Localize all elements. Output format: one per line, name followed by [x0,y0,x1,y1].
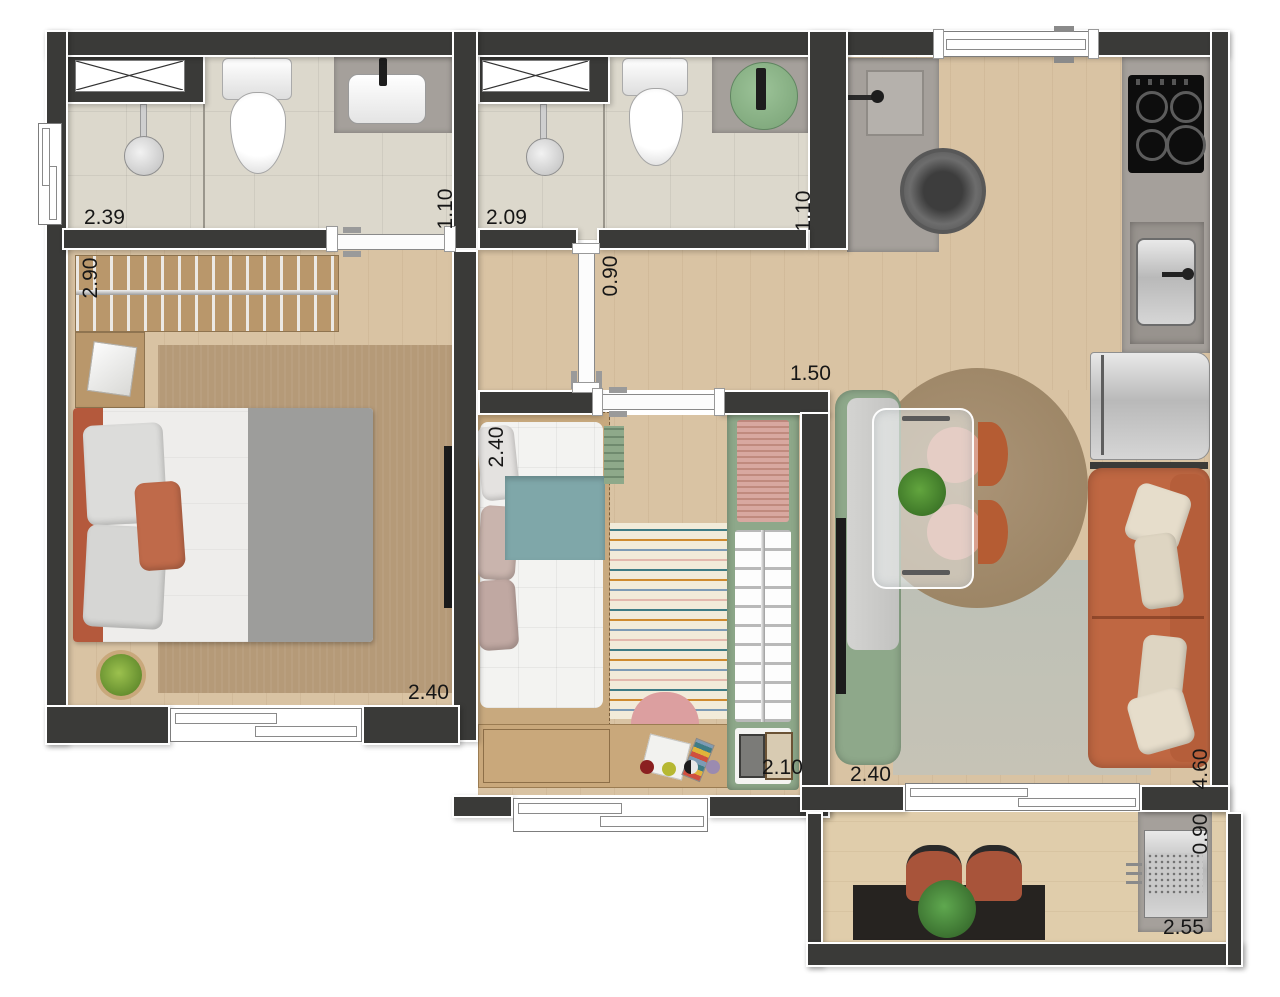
dim-bathroom2-depth: 1.10 [792,182,816,240]
gas-cooktop [1128,75,1204,173]
dim-balcony-depth: 0.90 [1189,805,1213,863]
wardrobe-rail [735,530,791,722]
slider-pane [910,788,1028,797]
bed2-headboard-organizer [604,426,624,484]
shower-head-2 [526,138,564,176]
table-support [902,570,950,575]
window-pane [49,166,57,220]
shower-divider-2 [603,102,605,240]
burner [1136,91,1168,123]
table-support [902,416,950,421]
master-plant [100,654,142,696]
entry-door-handle [1054,57,1074,63]
dim-balcony-width: 2.55 [1163,916,1204,940]
sofa-seat-split [1092,616,1204,619]
bed2-pillow [475,579,520,652]
dim-bathroom1-width: 2.39 [84,206,125,230]
master-window [170,708,362,742]
kitchen-sink-faucet-dot [1182,268,1194,280]
bedroom2-bottom-wall-a [452,795,513,818]
under-bath2-wall-a [478,228,578,250]
washtub-faucet-head [871,90,884,103]
toy-ball [684,760,698,774]
dim-bathroom2-width: 2.09 [486,206,527,230]
right-wall [1210,30,1230,812]
bedroom2-window [513,798,708,832]
master-bottom-wall-a [45,705,170,745]
living-bottom-stub-left [800,785,905,812]
burner [1166,125,1206,165]
closet-rod [76,290,338,295]
toy-ball [640,760,654,774]
hallway-door-leaf [578,252,595,384]
balcony-plant [918,880,976,938]
bedroom2-top-wall-a [478,390,600,415]
desk-drawer [483,729,610,783]
toy-ball [662,762,676,776]
bed-accent-pillow [134,481,186,572]
fridge-hinge-line [1101,355,1104,455]
dim-living-opening: 1.50 [790,362,831,386]
burner [1136,129,1168,161]
vanity1-sink [348,74,426,124]
entry-door [941,31,1091,57]
wardrobe-rod [761,530,765,722]
door-jamb [714,388,725,416]
nightstand-basket [87,341,138,397]
striped-rug [607,523,729,719]
door-jamb [1088,29,1099,59]
door-handle [343,251,361,257]
floor-plan: 2.39 1.10 2.09 1.10 [0,0,1280,997]
dim-living-depth: 4.60 [1189,740,1213,798]
living-tv [836,518,846,694]
window-pane [175,713,277,724]
x-glyph [483,61,588,90]
under-bath2-wall-b [597,228,808,250]
shaft-window-1 [75,60,185,92]
living-bottom-stub-right [1140,785,1230,812]
vanity1-faucet [379,58,387,86]
burner [1170,91,1202,123]
balcony-right-wall [1226,812,1243,967]
door-handle [609,387,627,393]
dim-bedroom2-bed: 2.40 [485,418,509,476]
cooktop-controls [1136,79,1196,85]
washtub [866,70,924,136]
bedroom2-door-leaf [600,394,717,410]
grill-handles [1126,862,1142,884]
entry-door-leaf [946,39,1086,50]
door-jamb [326,226,338,252]
master-door-leaf [336,234,450,250]
vanity2-faucet [756,68,766,110]
dim-closet-width: 2.90 [79,249,103,307]
bed2-teal-blanket [505,476,605,560]
door-handle [609,411,627,417]
balcony-chair [966,845,1022,901]
balcony-bottom-wall [806,942,1243,967]
dim-bathroom1-depth: 1.10 [434,180,458,238]
dim-master-width: 2.40 [408,681,449,705]
door-jamb [572,243,600,254]
master-closet-rail [75,255,339,332]
dim-hallway-width: 0.90 [599,247,623,305]
washing-machine [900,148,986,234]
door-jamb [592,388,603,416]
master-right-wall [452,250,478,742]
x-glyph [76,61,183,90]
balcony-sliding-door [905,783,1140,811]
kitchen-sink-basin [1136,238,1196,326]
dim-bedroom2-width: 2.10 [762,756,803,780]
entry-door-handle [1054,26,1074,32]
window-pane [600,816,704,827]
door-jamb [933,29,944,59]
slider-pane [1018,798,1136,807]
toy-ball [706,760,720,774]
door-handle [343,227,361,233]
dim-living-width: 2.40 [850,763,891,787]
shower-divider-1 [203,102,205,240]
wardrobe-bench [737,420,789,522]
bedroom2-living-wall [800,412,830,815]
under-bath1-wall [62,228,334,250]
shaft-window-2 [482,60,590,92]
refrigerator [1090,352,1210,460]
master-bed [73,408,373,642]
wardrobe-frame [727,412,799,790]
bathroom1-side-window [38,123,62,225]
shower-head-1 [124,136,164,176]
bed-duvet-gray [248,408,373,642]
terracotta-sofa [1088,468,1210,768]
window-pane [518,803,622,814]
table-plant [898,468,946,516]
master-bottom-wall-b [362,705,460,745]
window-pane [255,726,357,737]
